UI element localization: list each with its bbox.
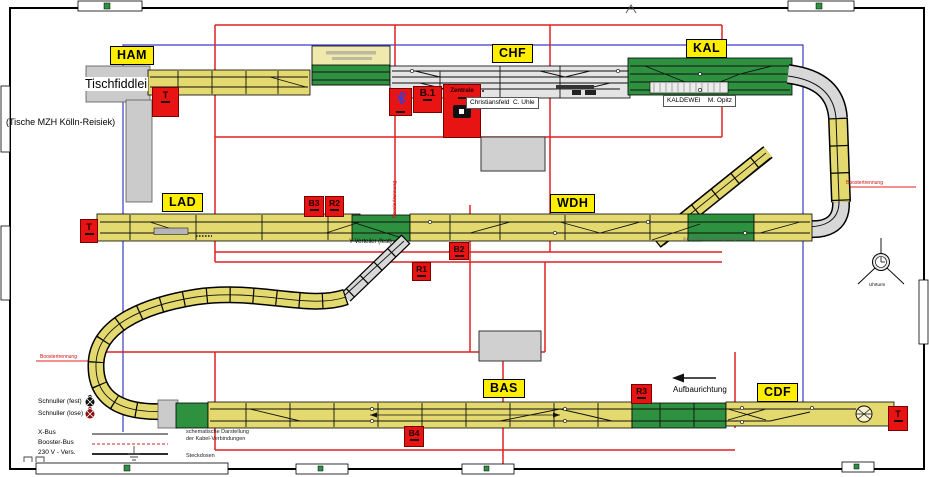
b4-box-label: B4 bbox=[405, 429, 423, 438]
aufbaurichtung-label: Aufbaurichtung bbox=[673, 385, 727, 394]
plan-drawing bbox=[0, 0, 929, 477]
t-box-cdf: T bbox=[888, 406, 908, 431]
t-box-ham-label: T bbox=[153, 91, 178, 100]
y-verteiler-note: Y-Verteiler (fest) bbox=[349, 239, 392, 245]
radio-box-underline bbox=[396, 111, 405, 113]
r3-box-underline bbox=[637, 397, 646, 399]
legend-230v: 230 V - Vers. bbox=[38, 449, 76, 457]
stairs-icon bbox=[24, 457, 44, 462]
tische-mzh-note: (Tische MZH Kölln-Reisiek) bbox=[6, 117, 115, 127]
legend-booster-bus: Booster-Bus bbox=[38, 439, 74, 447]
t-box-ham: T bbox=[152, 87, 179, 117]
b4-box-underline bbox=[410, 439, 419, 441]
gray-box-top bbox=[481, 137, 545, 171]
legend-lines bbox=[92, 434, 168, 454]
r3-box-label: R3 bbox=[632, 387, 651, 396]
tischfiddlei-label: Tischfiddlei bbox=[84, 77, 148, 91]
clock-tower-icon bbox=[858, 238, 904, 284]
b2-box-label: B2 bbox=[450, 245, 468, 254]
legend-schnuller-lose: Schnuller (lose) bbox=[38, 410, 83, 418]
b2-box: B2 bbox=[449, 242, 469, 260]
gray-box-middle bbox=[479, 331, 541, 361]
station-label-wdh: WDH bbox=[550, 194, 595, 213]
schnuller-fest-icon bbox=[86, 395, 95, 406]
s-curve-track bbox=[96, 295, 346, 412]
schnuller-lose-icon bbox=[86, 407, 95, 418]
t-box-cdf-label: T bbox=[889, 410, 907, 419]
t-box-ham-underline bbox=[161, 101, 170, 103]
station-label-cdf: CDF bbox=[757, 383, 798, 402]
b2-box-underline bbox=[455, 255, 464, 257]
boostertrennung-vertical: Boostertrennung bbox=[392, 181, 398, 218]
r1-box-underline bbox=[417, 275, 426, 277]
uhrturm-label: Uhrturm bbox=[869, 282, 885, 288]
legend-kabel-note-1: schematische Darstellung bbox=[186, 429, 249, 436]
station-label-chf: CHF bbox=[492, 44, 533, 63]
r2-box-underline bbox=[330, 209, 339, 211]
b1-box: B.1 bbox=[413, 86, 442, 113]
right-side-curve bbox=[788, 74, 841, 229]
t-box-cdf-underline bbox=[894, 420, 903, 422]
t-box-lad-label: T bbox=[81, 223, 97, 232]
aufbaurichtung-arrow bbox=[672, 374, 716, 383]
layout-plan: HAM CHF KAL LAD WDH BAS CDF T T T B.1 Ze… bbox=[0, 0, 929, 477]
zentrale-box: Zentrale bbox=[443, 84, 481, 138]
b3-box-label: B3 bbox=[305, 199, 323, 208]
station-label-kal: KAL bbox=[686, 39, 727, 58]
b3-box-underline bbox=[310, 209, 319, 211]
kaldewei-plate: KALDEWEI M. Opitz bbox=[663, 95, 736, 107]
b3-box: B3 bbox=[304, 196, 324, 217]
boostertrennung-right: Boostertrennung bbox=[846, 180, 883, 186]
legend-steckdosen: Steckdosen bbox=[186, 453, 215, 460]
legend-x-bus: X-Bus bbox=[38, 429, 56, 437]
r2-box-label: R2 bbox=[326, 199, 343, 208]
bas-cdf-track bbox=[158, 400, 894, 428]
radio-box bbox=[389, 88, 412, 116]
y-diagonal-track bbox=[344, 239, 406, 297]
r3-box: R3 bbox=[631, 384, 652, 404]
b4-box: B4 bbox=[404, 426, 424, 447]
legend-schnuller-fest: Schnuller (fest) bbox=[38, 398, 82, 406]
station-label-lad: LAD bbox=[162, 193, 203, 212]
r1-box-label: R1 bbox=[413, 265, 430, 274]
t-box-lad-underline bbox=[85, 233, 94, 235]
zentrale-box-label: Zentrale bbox=[444, 87, 480, 96]
legend-kabel-note-2: der Kabel-Verbindungen bbox=[186, 436, 245, 443]
t-box-lad: T bbox=[80, 219, 98, 243]
zusatz-kreuzung-note: zusätzliche Kreuzungsmöglichkeit bbox=[683, 236, 751, 242]
kal-station-track bbox=[628, 58, 792, 95]
bluetooth-icon bbox=[395, 91, 407, 105]
r1-box: R1 bbox=[412, 262, 431, 281]
station-label-bas: BAS bbox=[483, 379, 525, 398]
b1-box-label: B.1 bbox=[414, 89, 441, 98]
boostertrennung-left: Boostertrennung bbox=[40, 354, 77, 360]
ground-socket-icon bbox=[128, 446, 140, 460]
b1-box-underline bbox=[423, 99, 432, 101]
christiansfeld-plate: Christiansfeld C. Uhle bbox=[466, 97, 539, 109]
pre-chf-modules bbox=[312, 46, 390, 85]
station-label-ham: HAM bbox=[110, 46, 154, 65]
r2-box: R2 bbox=[325, 196, 344, 217]
